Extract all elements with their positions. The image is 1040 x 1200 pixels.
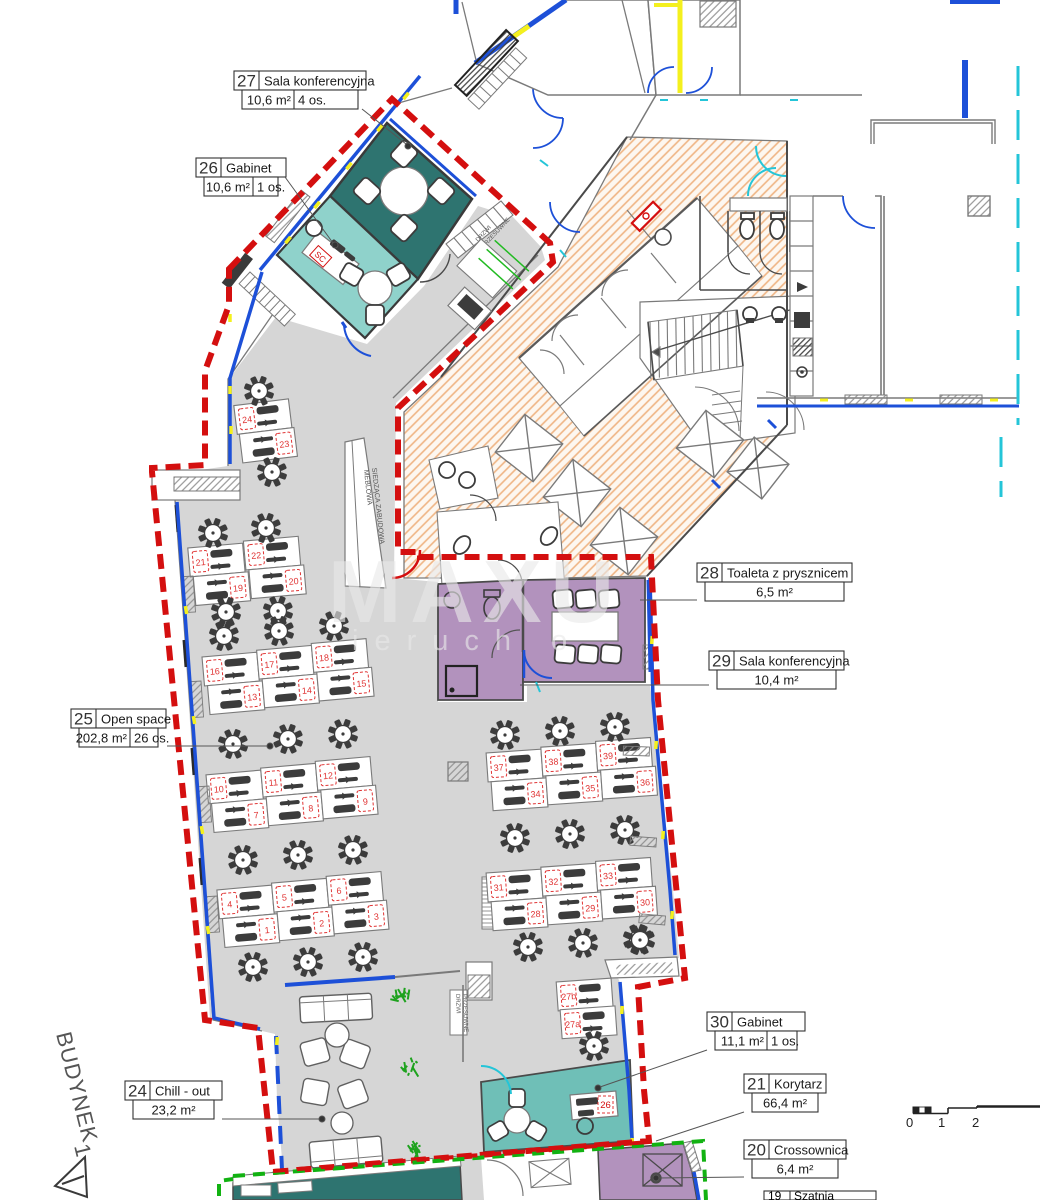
svg-text:24: 24 [128, 1082, 147, 1101]
svg-text:10,4 m²: 10,4 m² [754, 673, 799, 688]
svg-text:26: 26 [199, 159, 218, 178]
svg-text:5: 5 [281, 892, 287, 902]
svg-text:11,1 m²: 11,1 m² [721, 1034, 765, 1049]
svg-text:Crossownica: Crossownica [774, 1143, 849, 1158]
svg-text:Sala konferencyjna: Sala konferencyjna [264, 74, 375, 89]
svg-text:30: 30 [710, 1013, 729, 1032]
svg-text:Chill - out: Chill - out [155, 1084, 210, 1099]
svg-text:22: 22 [251, 550, 262, 561]
svg-text:20: 20 [747, 1141, 766, 1160]
svg-text:27: 27 [237, 72, 256, 91]
svg-text:10: 10 [213, 784, 224, 795]
svg-text:27a: 27a [565, 1019, 581, 1030]
svg-text:17: 17 [264, 659, 275, 670]
svg-text:30: 30 [640, 897, 651, 908]
svg-text:10,6 m²: 10,6 m² [247, 93, 292, 108]
svg-text:2: 2 [972, 1115, 979, 1130]
svg-text:20: 20 [288, 576, 299, 587]
svg-text:15: 15 [356, 678, 367, 689]
svg-text:19: 19 [233, 583, 244, 594]
svg-text:19: 19 [768, 1189, 782, 1200]
svg-text:3: 3 [373, 911, 379, 921]
svg-text:23: 23 [279, 439, 290, 450]
svg-text:33: 33 [603, 871, 614, 882]
svg-text:29: 29 [712, 652, 731, 671]
svg-text:21: 21 [195, 557, 206, 568]
svg-text:10,6 m²: 10,6 m² [206, 180, 251, 195]
svg-text:12: 12 [323, 770, 334, 781]
svg-text:1: 1 [264, 925, 270, 935]
svg-text:8: 8 [308, 803, 314, 813]
svg-text:31: 31 [493, 882, 504, 893]
svg-text:39: 39 [603, 751, 614, 762]
svg-text:6: 6 [336, 886, 342, 896]
svg-text:14: 14 [301, 685, 312, 696]
svg-text:23,2 m²: 23,2 m² [151, 1103, 196, 1118]
svg-text:16: 16 [209, 666, 220, 677]
svg-text:11: 11 [268, 777, 278, 788]
svg-text:Sala konferencyjna: Sala konferencyjna [739, 654, 850, 669]
svg-text:18: 18 [319, 652, 330, 663]
svg-text:Gabinet: Gabinet [226, 161, 272, 176]
svg-text:26 os.: 26 os. [134, 731, 169, 746]
svg-text:Gabinet: Gabinet [737, 1015, 783, 1030]
svg-text:1 os.: 1 os. [257, 180, 285, 195]
svg-text:4 os.: 4 os. [298, 93, 326, 108]
svg-text:66,4 m²: 66,4 m² [763, 1096, 808, 1111]
svg-text:6,5 m²: 6,5 m² [756, 585, 794, 600]
svg-text:Szatnia: Szatnia [794, 1189, 834, 1200]
svg-text:Toaleta z prysznicem: Toaleta z prysznicem [727, 566, 848, 581]
svg-text:28: 28 [700, 564, 719, 583]
svg-text:1: 1 [938, 1115, 945, 1130]
svg-text:9: 9 [362, 796, 368, 806]
svg-text:2: 2 [319, 918, 325, 928]
svg-text:21: 21 [747, 1075, 766, 1094]
svg-text:32: 32 [548, 877, 559, 888]
svg-text:38: 38 [548, 757, 559, 768]
svg-text:0: 0 [906, 1115, 913, 1130]
svg-text:Open space: Open space [101, 712, 171, 727]
svg-text:DRZWI: DRZWI [454, 994, 461, 1014]
svg-text:202,8 m²: 202,8 m² [76, 731, 128, 746]
svg-text:24: 24 [242, 414, 253, 425]
svg-text:25: 25 [74, 710, 93, 729]
svg-text:6,4 m²: 6,4 m² [777, 1162, 815, 1177]
svg-text:29: 29 [585, 903, 596, 914]
svg-text:4: 4 [227, 899, 233, 909]
svg-text:1 os.: 1 os. [771, 1034, 799, 1049]
svg-text:34: 34 [530, 789, 541, 800]
svg-text:27b: 27b [561, 991, 577, 1002]
svg-text:7: 7 [253, 810, 259, 820]
svg-text:Korytarz: Korytarz [774, 1077, 822, 1092]
svg-text:ieruch o: ieruch o [352, 625, 583, 657]
svg-text:26: 26 [600, 1100, 611, 1111]
svg-text:28: 28 [530, 909, 541, 920]
svg-text:13: 13 [247, 692, 258, 703]
svg-text:36: 36 [640, 777, 651, 788]
svg-text:35: 35 [585, 783, 596, 794]
svg-text:37: 37 [493, 762, 504, 773]
